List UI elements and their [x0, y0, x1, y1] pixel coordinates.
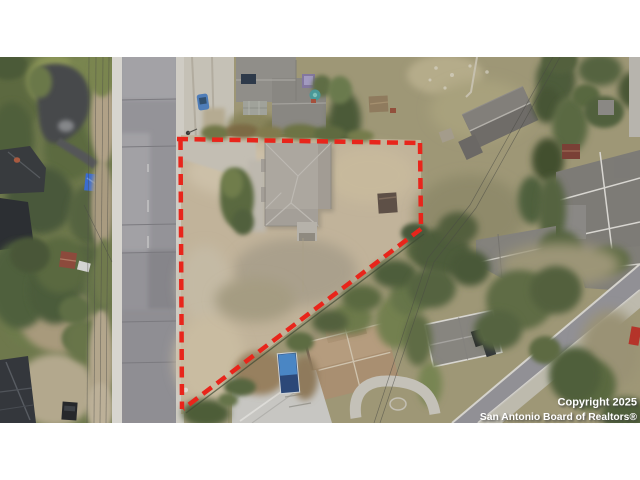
svg-text:Copyright 2025: Copyright 2025	[558, 397, 637, 409]
svg-text:San Antonio Board of Realtors®: San Antonio Board of Realtors®	[480, 412, 638, 423]
